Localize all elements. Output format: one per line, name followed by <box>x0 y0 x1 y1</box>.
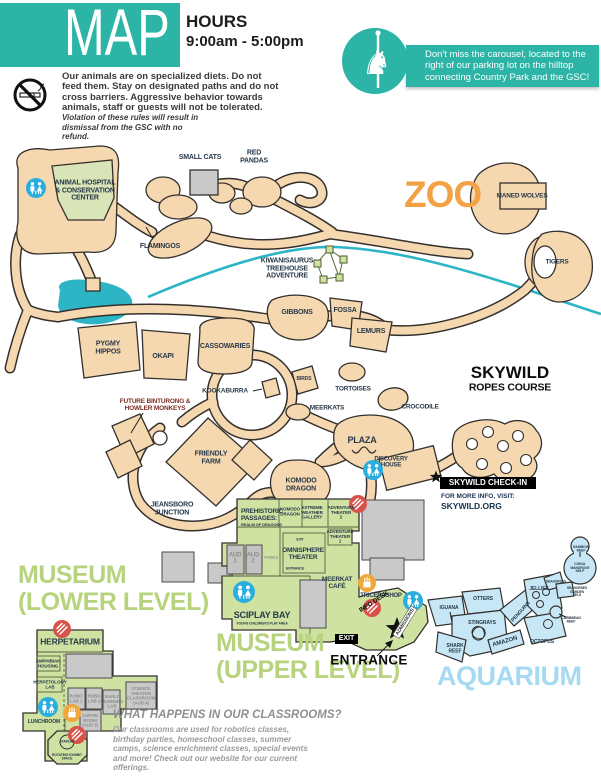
label-omni-entrance: ENTRANCE <box>286 567 304 571</box>
carousel-notice-banner: Don't miss the carousel, located to the … <box>406 45 599 87</box>
label-small-cats: SMALL CATS <box>179 154 221 162</box>
label-stingrays: STINGRAYS <box>468 620 496 625</box>
small-cats-building <box>190 170 218 195</box>
no-smoking-icon <box>15 80 45 110</box>
label-aud-2: AUD 2 <box>247 553 259 566</box>
label-caribbean-reef: CARIBBEAN REEF <box>561 616 580 623</box>
label-garden-eels: SEAHORSES GARDEN EELS <box>567 587 587 598</box>
classrooms-body: Our classrooms are used for robotics cla… <box>113 725 315 773</box>
label-safari-room: SAFARI ROOM (AUD 3) <box>82 714 98 729</box>
label-rainbow-reef: RAINBOW REEF <box>573 545 589 552</box>
label-red-pandas: RED PANDAS <box>240 149 268 164</box>
label-komodo-room: KOMODO DRAGON <box>280 507 300 517</box>
page-title: MAP <box>64 0 170 70</box>
label-kookaburra: KOOKABURRA <box>202 387 248 394</box>
label-seahorses: SEAHORSES <box>546 580 566 584</box>
zone-title-aquarium: AQUARIUM <box>437 661 582 692</box>
skywild-url: SKYWILD.ORG <box>441 501 502 511</box>
zone-title-zoo: ZOO <box>404 174 481 216</box>
label-meerkat-cafe: MEERKAT CAFÉ <box>322 576 352 590</box>
label-jellies: JELLIES <box>529 586 549 591</box>
exit-badge: EXIT <box>335 634 358 644</box>
label-okapi: OKAPI <box>152 353 173 361</box>
hours-value: 9:00am - 5:00pm <box>186 33 304 50</box>
label-crocodile: CROCODILE <box>401 403 438 410</box>
label-kiwanisaurus-treehouse: KIWANISAURUS TREEHOUSE ADVENTURE <box>261 258 313 281</box>
label-sciplay-sub: YOUNG CHILDREN'S PLAY AREA <box>236 622 287 626</box>
label-future-exhibit: FUTURE BINTURONG & HOWLER MONKEYS <box>120 398 190 412</box>
label-adventure-theater-1: ADVENTURE THEATER 1 <box>326 530 353 545</box>
label-extreme-weather: EXTREME WEATHER GALLERY <box>301 506 323 521</box>
carousel-icon-circle: ♞ <box>342 28 408 94</box>
hours-label: HOURS <box>186 12 247 32</box>
label-omni-exit: EXIT <box>296 538 303 542</box>
label-plaza: PLAZA <box>348 436 377 446</box>
label-herpetology-lab: HERPETOLOGY LAB <box>33 680 66 690</box>
label-sciplay-bay: SCIPLAY BAY <box>234 611 291 621</box>
label-otters: OTTERS <box>473 596 493 601</box>
label-coral-mangrove-kelp: CORAL MANGROVE KELP <box>570 563 589 574</box>
skywild-checkin-badge: SKYWILD CHECK-IN <box>440 477 536 489</box>
label-cassowaries: CASSOWARIES <box>200 343 250 351</box>
label-lemurs: LEMURS <box>357 328 385 336</box>
label-amphibian-housing: AMPHIBIAN HOUSING <box>36 659 61 669</box>
zone-subtitle-skywild: ROPES COURSE <box>469 382 551 393</box>
label-fossa: FOSSA <box>333 307 356 315</box>
zone-title-skywild: SKYWILD <box>471 364 549 382</box>
label-robo-lab-2: ROBO LAB 2 <box>87 694 100 704</box>
label-science-theater: SCIENCE THEATER CLASSROOM (AUD 4) <box>127 686 155 705</box>
label-rotating-exhibit: ROTATING EXHIBIT SPACE <box>52 753 82 760</box>
rules-violation-text: Violation of these rules will result in … <box>62 113 202 142</box>
label-pygmy-hippos: PYGMY HIPPOS <box>95 340 120 355</box>
label-lunchroom: LUNCHROOM <box>28 719 60 724</box>
rules-text: Our animals are on specialized diets. Do… <box>62 72 281 114</box>
label-adventure-theater-2: ADVENTURE THEATER 2 <box>327 506 354 521</box>
label-entrance: ENTRANCE <box>330 653 407 668</box>
label-birds: BIRDS <box>296 376 311 381</box>
gsc-map-page: MAP HOURS 9:00am - 5:00pm Don't miss the… <box>0 0 601 777</box>
label-shark-reef: SHARK REEF <box>446 644 463 655</box>
label-komodo-dragon: KOMODO DRAGON <box>285 477 316 492</box>
treehouse-icon <box>314 246 347 283</box>
label-maned-wolves: MANED WOLVES <box>497 192 548 199</box>
carousel-horse-icon: ♞ <box>342 28 408 94</box>
label-flamingos: FLAMINGOS <box>140 243 180 251</box>
label-discovery-house: DISCOVERY HOUSE <box>374 457 407 470</box>
label-robo-lab-1: ROBO LAB 1 <box>69 694 82 704</box>
label-iguana: IGUANA <box>439 605 458 610</box>
label-jeansboro-junction: JEANSBORO JUNCTION <box>151 501 194 516</box>
label-early-learning-lab: EARLY LEARNING LAB <box>101 695 124 710</box>
classrooms-heading: WHAT HAPPENS IN OUR CLASSROOMS? <box>113 709 342 721</box>
label-starlab: STARLAB <box>59 740 74 744</box>
label-prehistoric-sub: REALM OF DRAGONS <box>241 523 282 527</box>
label-octopus: OCTOPUS <box>530 639 554 644</box>
label-fossils: FOSSILS <box>264 556 278 560</box>
label-herpetarium: HERPETARIUM <box>40 637 100 646</box>
label-meerkats: MEERKATS <box>310 404 344 411</box>
zone-title-museum-lower: MUSEUM (LOWER LEVEL) <box>18 562 209 616</box>
label-omnisphere-theater: OMNISPHERE THEATER <box>282 547 324 561</box>
label-tigers: TIGERS <box>546 258 569 265</box>
label-tortoises: TORTOISES <box>335 385 371 392</box>
svg-text:♞: ♞ <box>362 43 392 83</box>
label-gibbons: GIBBONS <box>281 309 312 317</box>
carousel-notice-text: Don't miss the carousel, located to the … <box>406 49 599 84</box>
label-friendly-farm: FRIENDLY FARM <box>195 450 228 465</box>
label-animal-hospital: ANIMAL HOSPITAL & CONSERVATION CENTER <box>55 180 116 203</box>
label-prehistoric-passages: PREHISTORIC PASSAGES: <box>241 508 283 522</box>
skywild-info-text: FOR MORE INFO, VISIT: <box>441 493 515 500</box>
label-aud-1: AUD 1 <box>229 553 241 566</box>
